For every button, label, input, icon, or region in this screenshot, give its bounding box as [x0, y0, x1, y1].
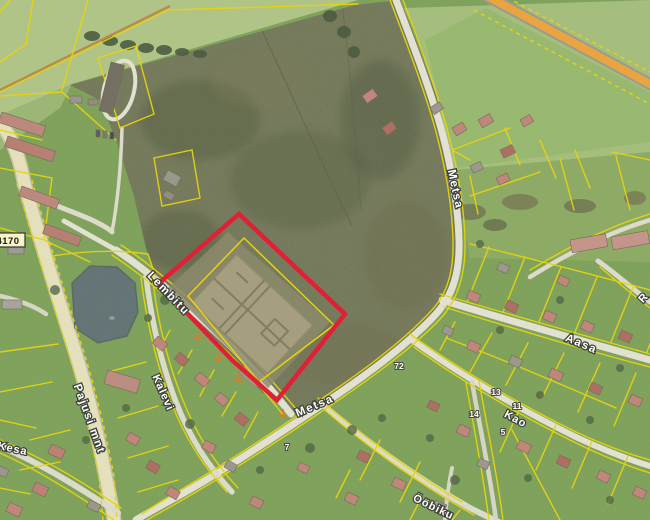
parcel-number: 7: [285, 442, 290, 452]
map-canvas: Lembitu Kalevi Pajusi mnt Metsa Metsa Aa…: [0, 0, 650, 520]
parcel-number: 13: [491, 387, 501, 397]
parcel-number: 72: [394, 361, 404, 371]
parcel-number: 14: [469, 409, 479, 419]
parcel-number: 11: [513, 401, 522, 411]
road-number-text: 4170: [0, 236, 20, 247]
aerial-cadastral-map[interactable]: Lembitu Kalevi Pajusi mnt Metsa Metsa Aa…: [0, 0, 650, 520]
road-number-badge: 4170: [0, 233, 25, 247]
parcel-number: 5: [501, 427, 506, 437]
